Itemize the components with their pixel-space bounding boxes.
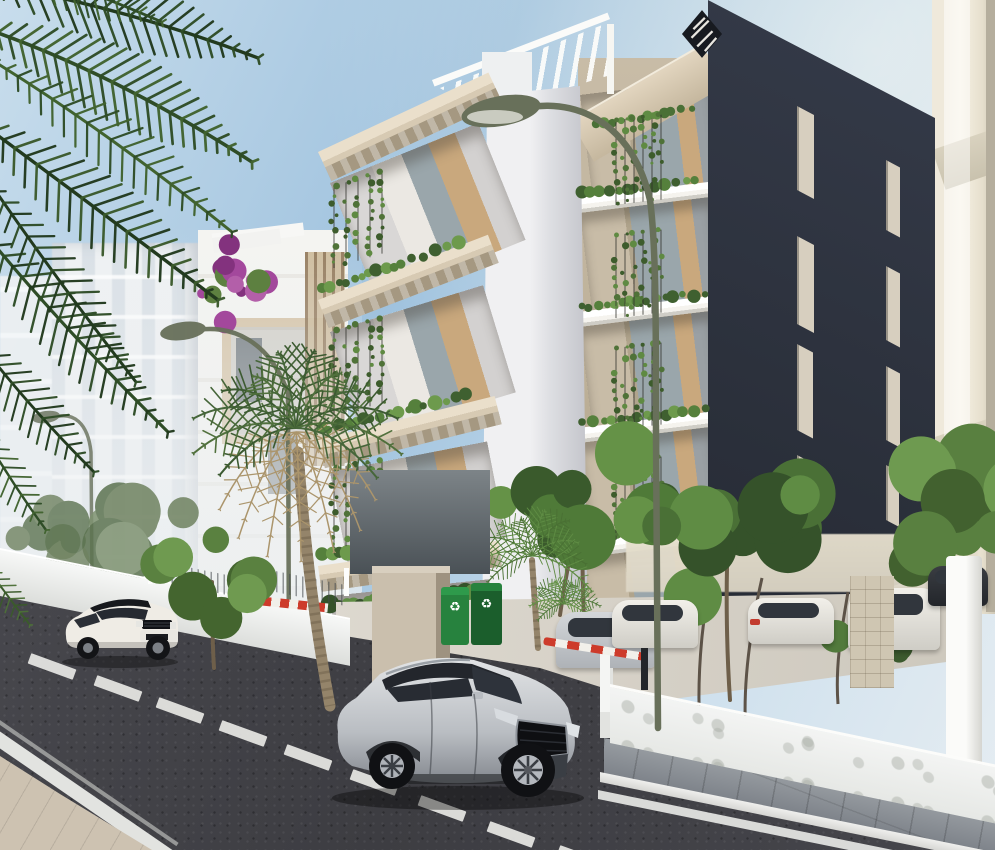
lane-dash: [487, 821, 536, 848]
lane-dash: [350, 769, 399, 796]
gate-post: [600, 652, 610, 712]
recycle-bin-icon: ♻: [471, 583, 502, 645]
architectural-render: ♻ ♻: [0, 0, 995, 850]
lane-dash: [418, 795, 467, 822]
lane-dash: [156, 697, 205, 724]
fence-post: [244, 562, 249, 589]
lane-dash: [94, 675, 143, 702]
lane-dash: [557, 845, 606, 850]
recycling-bins: ♻ ♻: [441, 583, 505, 649]
fence-post: [344, 568, 349, 596]
lane-dash: [284, 744, 333, 771]
fence-post: [148, 558, 153, 584]
recycle-bin-icon: ♻: [441, 587, 469, 645]
recycle-glyph: ♻: [449, 600, 461, 615]
recycle-glyph: ♻: [481, 597, 493, 612]
entrance-glazing: [350, 470, 490, 574]
lane-dash: [28, 653, 77, 680]
lane-dash: [219, 720, 268, 747]
lane-markings: [0, 0, 995, 850]
barrier-post: [641, 648, 648, 690]
entrance-kiosk: [372, 566, 450, 699]
